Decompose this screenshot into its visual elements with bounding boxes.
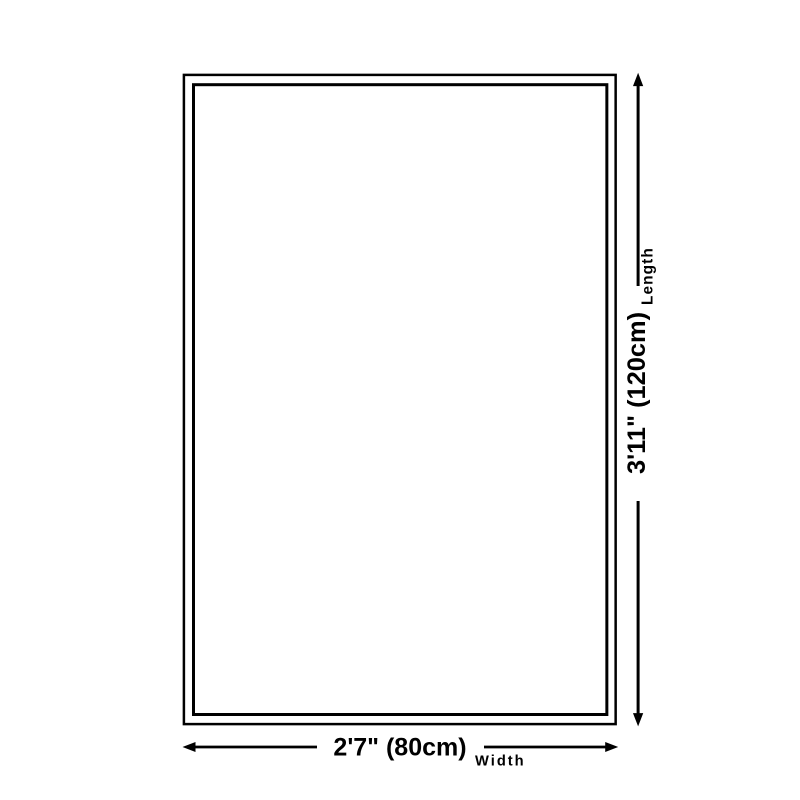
svg-text:Length: Length [640, 247, 657, 305]
svg-text:Width: Width [475, 754, 526, 770]
svg-text:2'7" (80cm): 2'7" (80cm) [333, 733, 466, 761]
svg-text:3'11" (120cm): 3'11" (120cm) [623, 312, 651, 474]
